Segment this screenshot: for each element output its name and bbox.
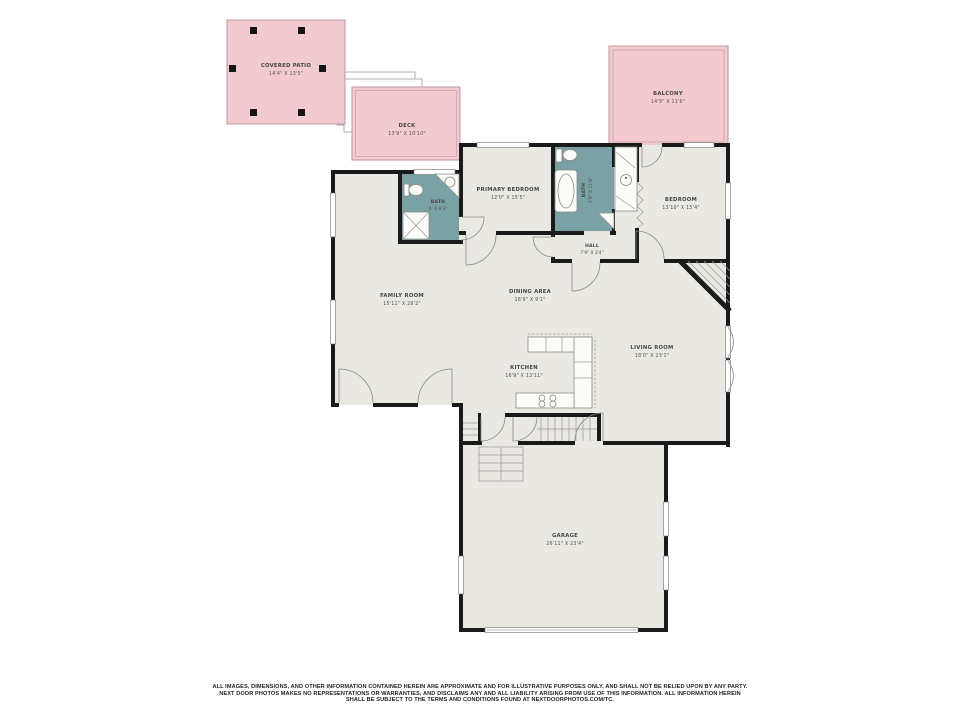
patio-post — [298, 109, 305, 116]
room-label-primary-bedroom: PRIMARY BEDROOM — [477, 187, 540, 193]
room-label-living-room: LIVING ROOM — [630, 345, 673, 351]
room-dims-family-room: 15'11" X 29'2" — [383, 301, 421, 307]
room-dims-covered-patio: 14'4" X 13'5" — [269, 71, 303, 77]
patio-post — [250, 109, 257, 116]
room-label-family-room: FAMILY ROOM — [380, 293, 424, 299]
room-label-bath-hall: BATH — [581, 183, 587, 197]
disclaimer-line-2: NEXT DOOR PHOTOS MAKES NO REPRESENTATION… — [0, 691, 960, 698]
room-dims-deck: 13'9" X 10'10" — [388, 131, 426, 137]
floor-plan-page: COVERED PATIO 14'4" X 13'5" DECK 13'9" X… — [0, 0, 960, 720]
balcony: BALCONY 14'9" X 11'6" — [609, 46, 728, 146]
disclaimer-line-3: SHALL BE SUBJECT TO THE TERMS AND CONDIT… — [0, 697, 960, 704]
room-dims-garage: 26'11" X 23'4" — [546, 541, 584, 547]
sink — [445, 177, 455, 187]
room-dims-dining-area: 16'9" X 9'1" — [514, 297, 545, 303]
covered-patio: COVERED PATIO 14'4" X 13'5" — [227, 20, 345, 124]
patio-post — [298, 27, 305, 34]
disclaimer-text: ALL IMAGES, DIMENSIONS, AND OTHER INFORM… — [0, 684, 960, 704]
room-label-bedroom: BEDROOM — [665, 197, 697, 203]
room-dims-living-room: 18'0" X 23'1" — [635, 353, 669, 359]
room-label-balcony: BALCONY — [653, 91, 683, 97]
room-dims-primary-bedroom: 12'0" X 15'5" — [491, 195, 525, 201]
room-dims-hall: 7'9" X 3'4" — [580, 250, 603, 256]
patio-post — [229, 65, 236, 72]
room-label-bath-primary: BATH — [431, 199, 445, 205]
sink — [621, 175, 632, 186]
toilet — [556, 149, 562, 162]
room-dims-bath-primary: 8' X 8'3" — [429, 206, 448, 212]
floor-plan-drawing: COVERED PATIO 14'4" X 13'5" DECK 13'9" X… — [0, 0, 960, 720]
disclaimer-line-1: ALL IMAGES, DIMENSIONS, AND OTHER INFORM… — [0, 684, 960, 691]
room-dims-kitchen: 16'9" X 13'11" — [505, 373, 543, 379]
room-label-deck: DECK — [398, 123, 416, 129]
patio-post — [319, 65, 326, 72]
garage-door — [485, 628, 638, 633]
room-label-kitchen: KITCHEN — [510, 365, 538, 371]
room-dims-bath-hall: 7'9" X 11'6" — [588, 177, 594, 203]
room-label-garage: GARAGE — [552, 533, 578, 539]
room-label-covered-patio: COVERED PATIO — [261, 63, 312, 69]
room-dims-balcony: 14'9" X 11'6" — [651, 99, 685, 105]
toilet-bowl — [563, 150, 577, 161]
room-label-hall: HALL — [585, 243, 599, 249]
toilet-bowl — [409, 185, 423, 196]
deck: DECK 13'9" X 10'10" — [352, 87, 460, 160]
patio-post — [250, 27, 257, 34]
toilet — [404, 184, 409, 196]
room-dims-bedroom: 13'10" X 15'4" — [662, 205, 700, 211]
room-label-dining-area: DINING AREA — [509, 289, 552, 295]
bathtub-basin — [558, 174, 574, 208]
